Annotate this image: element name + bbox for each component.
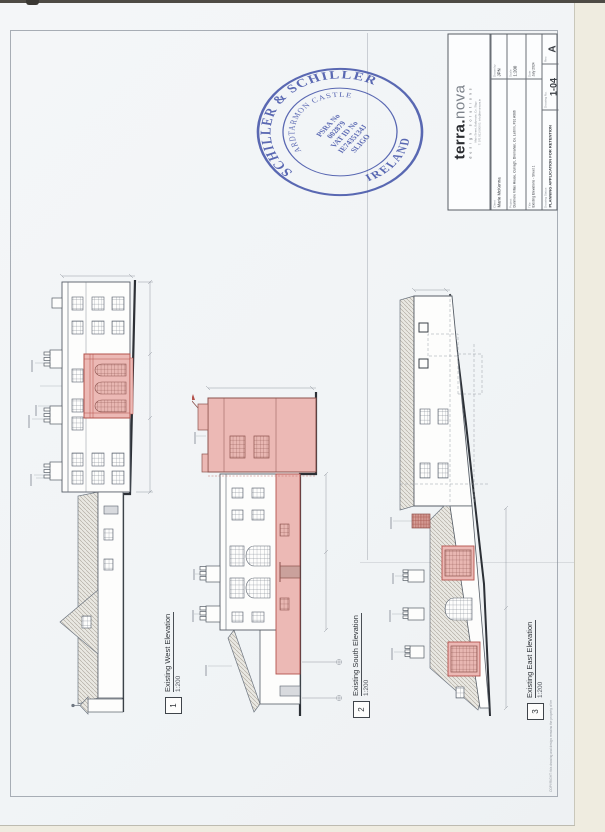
south-chimneys — [200, 566, 220, 622]
south-elevation-title: Existing South Elevation — [351, 613, 362, 696]
logo-address-2: T: 071 911 0000 E: info@terranova.ie — [478, 34, 482, 209]
logo-nova: nova — [451, 84, 468, 119]
east-brick-chimney — [412, 514, 430, 528]
project-label: Project — [508, 198, 512, 207]
drawing-no-value: 1-04 — [548, 66, 558, 107]
rev-label: Rev. — [543, 56, 547, 62]
drawn-by-label: Drawn by — [492, 64, 496, 77]
logo-dot: . — [451, 119, 468, 124]
scan-corner-mark — [26, 0, 39, 5]
drawing-no-label: Drawing No. — [543, 91, 547, 108]
south-label-wrap: 2 Existing South Elevation 1:200 — [334, 596, 370, 718]
west-label-wrap: 1 Existing West Elevation 1:200 — [146, 592, 182, 714]
scale-label: Scale — [508, 69, 512, 77]
east-annotation-text-marks — [389, 517, 394, 660]
paper-edge-bottom — [0, 825, 575, 826]
client-label: Client — [492, 200, 496, 208]
company-stamp: SCHILLER & SCHILLER IRELAND ARDTARMON CA… — [250, 64, 430, 204]
scale-value: 1:200 — [512, 36, 517, 76]
title-block: terra.nova design solutions Main Street,… — [447, 33, 557, 210]
east-elevation-drawing — [388, 288, 524, 724]
east-elevation-title: Existing East Elevation — [525, 620, 536, 698]
scanned-drawing-page: { "document": { "edge_note": "COPYRIGHT:… — [0, 0, 605, 832]
east-wing — [403, 506, 489, 710]
east-annotation-leaders — [392, 521, 412, 652]
south-elevation-number-box: 2 — [353, 701, 370, 718]
east-elevation-wrap — [388, 288, 524, 724]
east-elevation-number-box: 3 — [527, 703, 544, 720]
south-highlight-tower — [192, 394, 316, 476]
status-value: PLANNING APPLICATION FOR RETENTION — [547, 112, 552, 207]
copyright-edge-note: COPYRIGHT: this drawing and design remai… — [549, 700, 553, 792]
west-elevation-scale: 1:200 — [175, 612, 182, 692]
west-annotation-text-marks — [28, 360, 37, 486]
project-value: Dunmore Villas House, Curragh, Dromahair… — [512, 81, 516, 207]
title-block-wrap: terra.nova design solutions Main Street,… — [447, 33, 557, 210]
rev-value: A — [547, 36, 558, 61]
west-wing — [60, 492, 123, 704]
west-highlight-bay — [84, 354, 133, 418]
west-elevation-title: Existing West Elevation — [163, 612, 174, 692]
drawn-by-value: JPN — [496, 36, 501, 76]
title-label: Title — [527, 202, 531, 208]
south-elevation-scale: 1:200 — [363, 613, 370, 696]
south-highlight-ground-floor — [276, 474, 300, 674]
paper-edge-right — [574, 3, 575, 826]
east-elevation-scale: 1:200 — [537, 620, 544, 698]
company-logo: terra.nova design solutions Main Street,… — [448, 34, 490, 209]
south-elevation-wrap — [192, 380, 348, 726]
date-value: July 2024 — [531, 36, 535, 76]
south-elevation-drawing — [192, 380, 348, 726]
east-label-wrap: 3 Existing East Elevation 1:200 — [508, 598, 544, 720]
title-value: Existing Elevations - Sheet 1 — [531, 81, 535, 207]
logo-tagline: design solutions — [468, 34, 472, 209]
date-label: Date — [527, 70, 531, 76]
status-label: Drawing Status — [543, 187, 547, 207]
east-main-block — [400, 296, 472, 510]
west-elevation-number-box: 1 — [165, 697, 182, 714]
logo-terra: terra — [451, 123, 468, 159]
west-chimneys — [44, 298, 62, 480]
client-value: Marie McKenna — [496, 81, 501, 207]
